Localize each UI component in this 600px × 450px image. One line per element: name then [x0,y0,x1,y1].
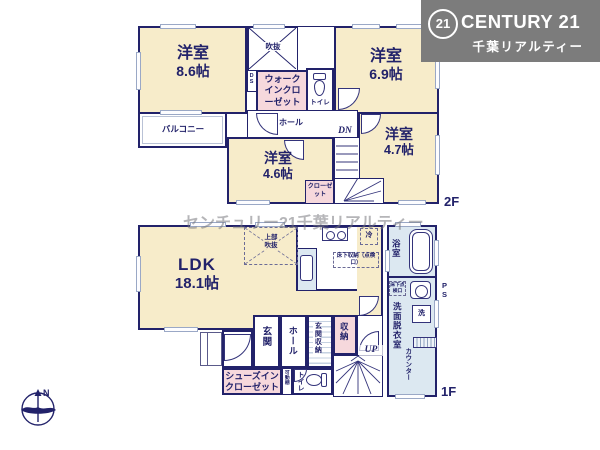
underfloor-storage-label: 床下収納（点検口） [336,253,376,267]
north-label: N [43,388,50,398]
window [136,256,141,292]
watermark-text: センチュリー21千葉リアルティー [183,209,423,233]
washer-label: 洗 [413,310,430,318]
room-2f-46-label: 洋室4.6帖 [238,150,318,182]
balcony-label: バルコニー [143,124,223,134]
window [434,240,439,266]
window [435,135,440,175]
washroom-label: 洗面脱衣室 [392,302,402,350]
window [352,24,380,29]
bathtub-inner [412,232,430,271]
washbasin-icon [410,281,431,299]
washbasin-bowl [415,285,428,298]
entrance-storage-label: 玄関収納 [313,322,321,354]
room-2f-69-label: 洋室6.9帖 [341,47,431,83]
storage-1f-label: 収納 [339,322,349,341]
century21-seal-icon: 21 [428,9,458,39]
toilet-1f-label: トイレ [295,371,303,391]
wic-label: ウォークインクローゼット [261,74,304,108]
toilet-icon-1f-tank [321,373,327,387]
window [398,200,426,205]
floorplan-page: 洋室8.6帖 洋室6.9帖 洋室4.7帖 洋室4.6帖 バルコニー 吹抜 DS … [0,0,600,450]
shoes-closet-label: シューズインクローゼット [224,371,280,393]
bathtub-icon [409,229,433,274]
closet-2f-label: クローゼット [307,183,333,199]
kitchen-sink-icon [300,255,313,281]
stairs-dn-label: DN [334,126,356,137]
hall-2f-label: ホール [275,118,307,128]
window [396,24,424,29]
window [164,327,198,332]
floor-2f-tag: 2F [444,194,459,209]
compass-silhouette [21,407,56,414]
window [253,24,285,29]
window [236,200,270,205]
counter-label: カウンター [403,348,411,381]
duct-label: DS [248,73,255,85]
stairs-1f-treads [333,355,383,397]
upper-void-label: 上部吹抜 [263,234,279,250]
company-name: 千葉リアルティー [463,36,593,55]
movable-shelf-label: 可動棚 [283,370,289,384]
void-label: 吹抜 [257,42,289,51]
porch-step [200,332,222,366]
fridge-label: 冷 [361,232,377,240]
brand-name: CENTURY 21 [461,11,580,33]
floor-1f-tag: 1F [441,384,456,399]
bath-label: 浴室 [391,239,401,258]
closet-2f-unlabeled [297,26,336,72]
window [160,110,202,115]
room-2f-47-label: 洋室4.7帖 [368,126,430,158]
toilet-2f-label: トイレ [307,99,333,107]
pipe-space-label: PS [440,281,449,299]
room-2f-86-label: 洋室8.6帖 [148,44,238,80]
underfloor-hatch-label: 床下点検口 [389,283,406,295]
century21-banner: 21 CENTURY 21 千葉リアルティー [421,0,600,62]
toilet-icon-1f-bowl [306,374,322,386]
window [434,300,439,328]
porch-step-line [207,333,208,365]
toilet-icon-2f-tank [313,73,326,80]
hall-1f-label: ホール [287,326,298,356]
counter-strip [413,337,437,348]
north-compass: N [14,383,64,433]
entrance-label: 玄関 [260,326,271,347]
window [395,394,425,399]
window [136,52,141,90]
window [160,24,196,29]
stairs-up-label: UP [359,345,383,356]
bath-door-opening [385,250,390,272]
ldk-label: LDK18.1帖 [152,255,242,293]
